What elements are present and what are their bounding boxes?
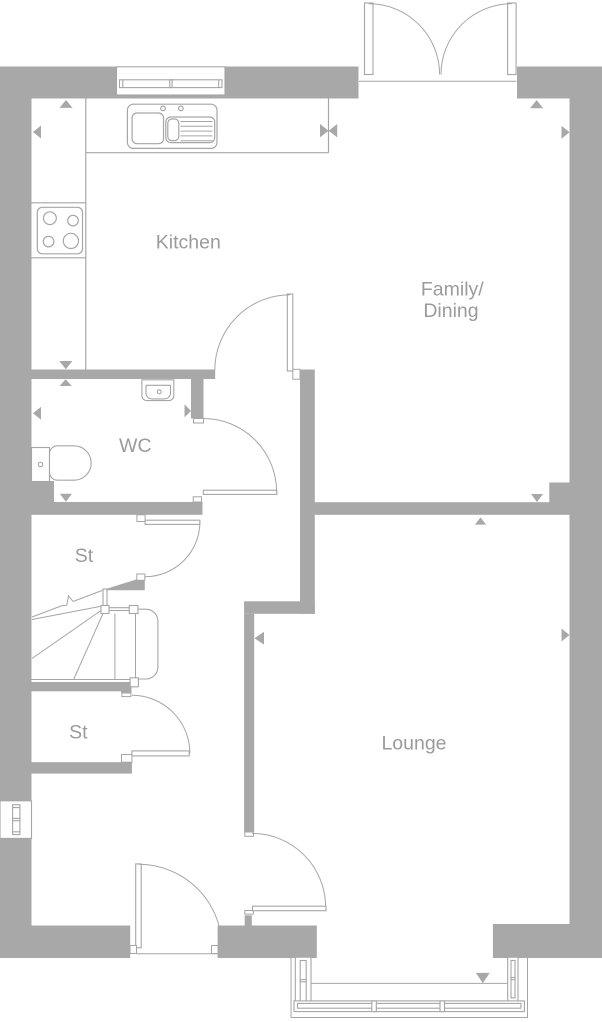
svg-text:St: St: [75, 545, 94, 567]
svg-text:Kitchen: Kitchen: [156, 232, 221, 254]
svg-text:Family/: Family/: [421, 279, 484, 301]
svg-text:WC: WC: [119, 435, 152, 457]
svg-text:St: St: [69, 722, 88, 744]
svg-text:Dining: Dining: [423, 300, 478, 322]
svg-text:Lounge: Lounge: [381, 733, 446, 755]
